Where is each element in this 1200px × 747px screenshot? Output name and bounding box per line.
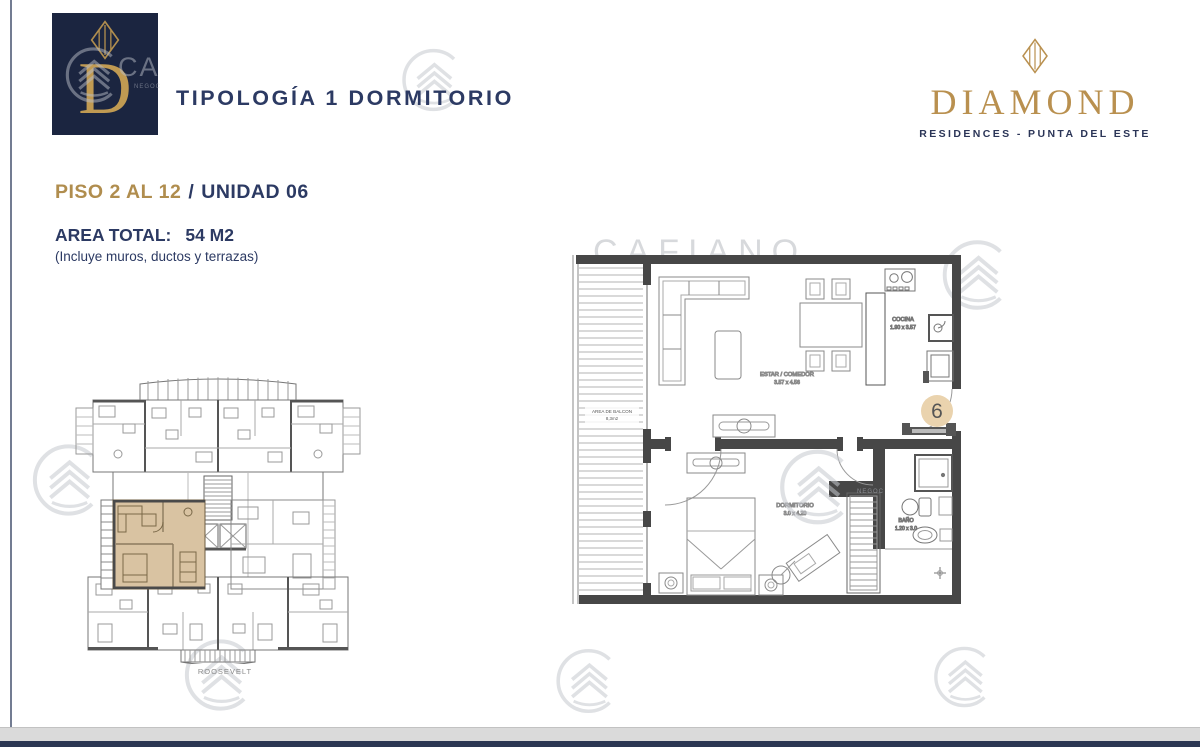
bottom-window-strip — [0, 741, 1200, 747]
sink-icon — [929, 315, 953, 341]
unit-number: 6 — [931, 400, 943, 423]
balcony: AREA DE BALCON 8,3m2 — [573, 255, 643, 604]
diamond-tagline: RESIDENCES - PUNTA DEL ESTE — [890, 128, 1180, 140]
area-value: 54 M2 — [185, 225, 234, 245]
bathroom-label: BAÑO — [898, 517, 913, 524]
dining-table-icon — [800, 303, 862, 347]
balcony-label: AREA DE BALCON — [592, 409, 632, 414]
desk-icon — [786, 535, 840, 582]
separator: / — [188, 181, 194, 203]
area-total-line: AREA TOTAL:54 M2 — [55, 225, 234, 246]
living-dims: 3.57 x 4.56 — [774, 380, 800, 386]
bedroom-door-arc — [665, 449, 721, 505]
kitchen-dims: 1.90 x 3.57 — [890, 325, 916, 331]
nightstand-icon — [659, 573, 683, 593]
bathroom-dims: 1.20 x 3.0 — [895, 526, 917, 532]
watermark-logo — [930, 643, 998, 711]
key-plan — [68, 372, 368, 669]
watermark-initials: CA — [118, 52, 160, 83]
unit-floor-plan: AREA DE BALCON 8,3m2 — [563, 243, 968, 623]
diamond-wordmark: DIAMOND — [890, 81, 1180, 123]
living-area: ESTAR / COMEDOR 3.57 x 4.56 — [659, 277, 862, 437]
balcony-dims: 8,3m2 — [606, 416, 619, 421]
unit-label: UNIDAD 06 — [201, 181, 308, 203]
street-label: ROOSEVELT — [160, 667, 290, 676]
toilet-icon — [902, 499, 918, 515]
watermark-logo — [552, 645, 624, 717]
kitchen-label: COCINA — [892, 317, 914, 323]
horizontal-scrollbar[interactable] — [0, 727, 1200, 742]
tv-console-icon — [687, 453, 745, 473]
floor-plan-page: CAFIANO NEGOC D CA NEGOC TIPOLOGÍA 1 DOR… — [0, 0, 1200, 747]
area-label: AREA TOTAL: — [55, 225, 171, 245]
floor-label: PISO 2 AL 12 — [55, 181, 181, 203]
bathroom-area: BAÑO 1.20 x 3.0 — [885, 455, 952, 579]
floor-drain-icon — [934, 567, 946, 579]
watermark-logo: NEGOC — [775, 445, 859, 529]
coffee-table-icon — [715, 331, 741, 379]
bed-icon — [687, 498, 755, 595]
watermark-partial-text: NEGOC — [857, 489, 884, 495]
area-note: (Incluye muros, ductos y terrazas) — [55, 249, 258, 264]
watermark-partial-text: NEGOC — [134, 84, 161, 90]
unit-number-badge: 6 — [921, 395, 953, 427]
page-edge-rule — [10, 0, 12, 741]
key-plan-highlighted-unit[interactable] — [101, 500, 205, 589]
nightstand-icon — [759, 575, 783, 595]
floor-unit-line: PISO 2 AL 12/UNIDAD 06 — [55, 181, 309, 204]
living-label: ESTAR / COMEDOR — [760, 372, 814, 378]
diamond-icon — [1020, 38, 1050, 74]
watermark-logo-over-brand: CA NEGOC — [62, 42, 232, 112]
kitchen-area: COCINA 1.90 x 3.57 — [866, 269, 953, 385]
diamond-residences-logo: DIAMOND RESIDENCES - PUNTA DEL ESTE — [890, 38, 1180, 140]
shower-icon — [915, 455, 952, 491]
tv-console-icon — [713, 415, 775, 437]
